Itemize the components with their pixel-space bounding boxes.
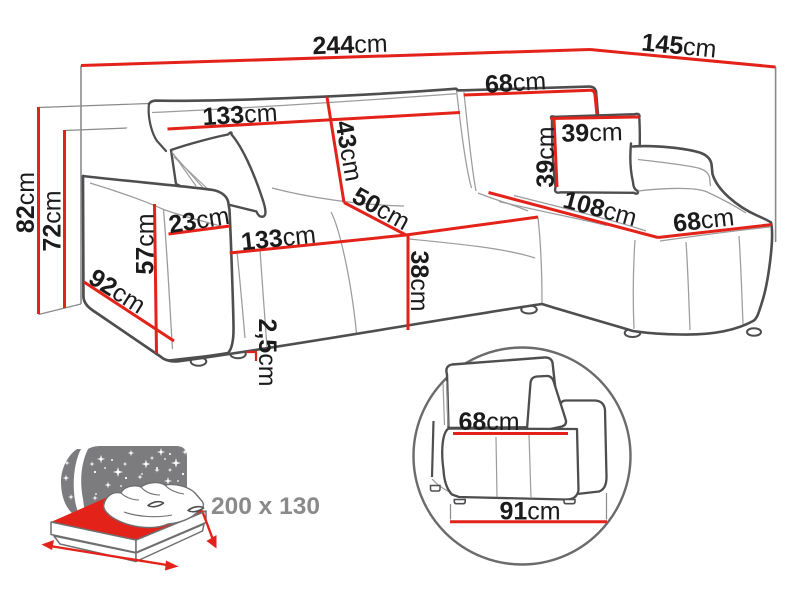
svg-text:91cm: 91cm	[499, 497, 560, 525]
svg-text:39cm: 39cm	[561, 118, 623, 148]
svg-text:38cm: 38cm	[405, 250, 433, 311]
svg-text:68cm: 68cm	[484, 67, 547, 99]
svg-text:200 x 130: 200 x 130	[211, 493, 320, 520]
svg-text:133cm: 133cm	[202, 99, 279, 132]
svg-text:39cm: 39cm	[532, 126, 560, 187]
svg-text:2,5cm: 2,5cm	[253, 318, 281, 386]
svg-text:82cm: 82cm	[12, 172, 40, 233]
svg-text:57cm: 57cm	[132, 213, 160, 274]
svg-text:68cm: 68cm	[458, 408, 519, 436]
svg-text:72cm: 72cm	[39, 190, 67, 251]
svg-text:244cm: 244cm	[312, 30, 388, 61]
